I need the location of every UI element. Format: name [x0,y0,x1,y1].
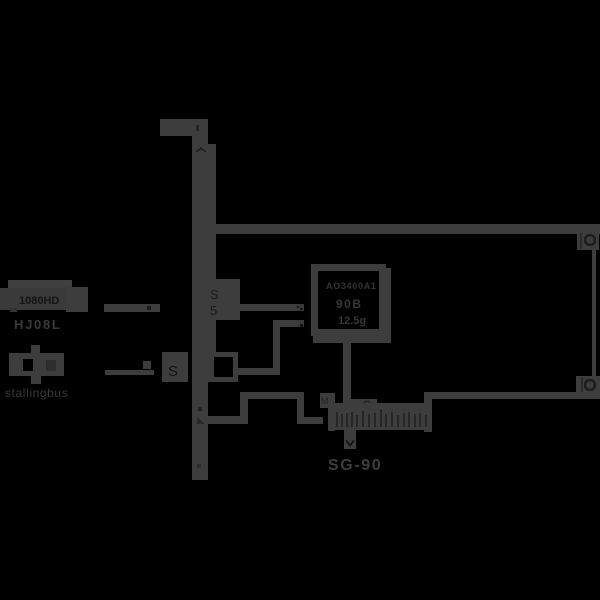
svg-text:M: M [321,396,329,406]
svg-text:S: S [168,363,178,380]
svg-text:SG-90: SG-90 [328,457,382,474]
svg-text:AO3400A1: AO3400A1 [326,281,377,291]
svg-text:1080HD: 1080HD [19,295,59,307]
svg-text:HJ08L: HJ08L [14,317,62,332]
svg-text:stallingbus: stallingbus [5,386,68,400]
svg-text:12.5g: 12.5g [338,315,366,327]
svg-text:90B: 90B [336,297,363,311]
svg-text:5: 5 [210,303,217,318]
svg-text:S: S [210,287,219,302]
